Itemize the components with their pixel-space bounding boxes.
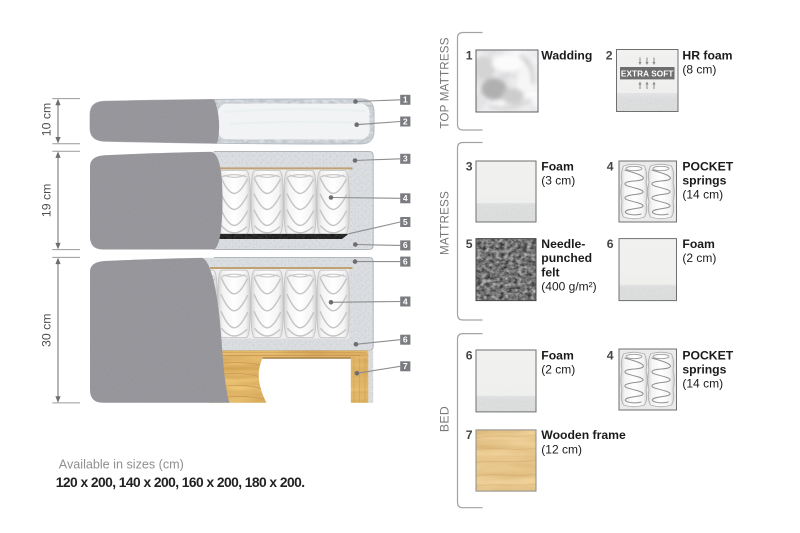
svg-text:1: 1 <box>466 48 473 62</box>
svg-text:6: 6 <box>607 237 614 251</box>
svg-text:3: 3 <box>466 159 473 173</box>
svg-text:Available in sizes (cm): Available in sizes (cm) <box>59 457 184 471</box>
svg-text:Foam: Foam <box>682 237 715 251</box>
svg-text:(2 cm): (2 cm) <box>682 251 716 265</box>
svg-text:HR foam: HR foam <box>682 48 732 62</box>
svg-text:felt: felt <box>541 265 559 279</box>
svg-text:springs: springs <box>682 363 726 377</box>
svg-text:4: 4 <box>607 348 614 362</box>
svg-text:(2 cm): (2 cm) <box>541 363 575 377</box>
svg-text:(3 cm): (3 cm) <box>541 174 575 188</box>
svg-text:10 cm: 10 cm <box>40 103 54 137</box>
svg-text:springs: springs <box>682 174 726 188</box>
svg-text:2: 2 <box>606 48 613 62</box>
svg-text:EXTRA SOFT: EXTRA SOFT <box>621 69 674 78</box>
svg-text:30 cm: 30 cm <box>40 313 54 347</box>
svg-text:2: 2 <box>403 116 408 126</box>
svg-text:Foam: Foam <box>541 348 574 362</box>
svg-text:punched: punched <box>541 251 592 265</box>
svg-text:Needle-: Needle- <box>541 237 585 251</box>
svg-text:120 x 200, 140 x 200, 160 x 20: 120 x 200, 140 x 200, 160 x 200, 180 x 2… <box>56 475 305 490</box>
svg-text:POCKET: POCKET <box>682 159 733 173</box>
svg-text:19 cm: 19 cm <box>40 184 54 218</box>
svg-text:5: 5 <box>466 237 473 251</box>
svg-text:4: 4 <box>607 159 614 173</box>
svg-text:3: 3 <box>403 154 408 164</box>
svg-text:(14 cm): (14 cm) <box>682 377 723 391</box>
svg-text:1: 1 <box>403 95 408 105</box>
svg-text:6: 6 <box>403 240 408 250</box>
svg-text:6: 6 <box>403 335 408 345</box>
svg-text:(14 cm): (14 cm) <box>682 188 723 202</box>
svg-text:4: 4 <box>403 296 408 306</box>
svg-text:5: 5 <box>403 217 408 227</box>
svg-text:Wooden frame: Wooden frame <box>541 428 626 442</box>
svg-text:Wadding: Wadding <box>541 48 592 62</box>
svg-text:(400 g/m²): (400 g/m²) <box>541 280 596 294</box>
svg-text:POCKET: POCKET <box>682 348 733 362</box>
svg-text:TOP MATTRESS: TOP MATTRESS <box>438 37 451 128</box>
svg-text:Foam: Foam <box>541 159 574 173</box>
svg-text:4: 4 <box>403 193 408 203</box>
svg-text:6: 6 <box>466 348 473 362</box>
svg-text:7: 7 <box>403 361 408 371</box>
svg-text:BED: BED <box>437 406 451 432</box>
svg-text:(12 cm): (12 cm) <box>541 442 582 456</box>
svg-text:6: 6 <box>403 256 408 266</box>
svg-text:(8 cm): (8 cm) <box>682 63 716 77</box>
svg-text:7: 7 <box>466 428 473 442</box>
svg-text:MATTRESS: MATTRESS <box>438 191 451 255</box>
